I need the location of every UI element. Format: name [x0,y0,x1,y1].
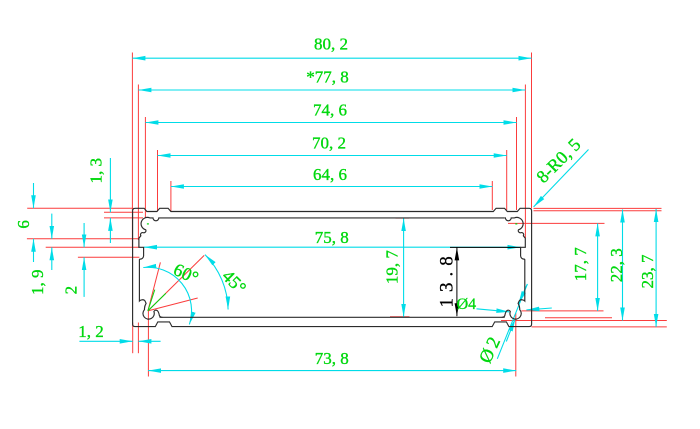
svg-text:8-R0, 5: 8-R0, 5 [532,134,584,186]
svg-text:22, 3: 22, 3 [607,248,626,282]
svg-text:Ø4: Ø4 [457,296,477,313]
svg-text:64, 6: 64, 6 [313,165,347,184]
svg-text:19, 7: 19, 7 [382,250,401,285]
svg-text:75, 8: 75, 8 [315,228,349,247]
svg-text:13.8: 13.8 [437,250,458,307]
svg-text:45°: 45° [218,266,250,298]
svg-text:*77, 8: *77, 8 [306,67,349,86]
svg-text:73, 8: 73, 8 [315,349,349,368]
svg-text:6: 6 [14,220,33,229]
svg-text:74, 6: 74, 6 [313,100,347,119]
svg-text:1, 2: 1, 2 [78,322,104,341]
svg-text:70, 2: 70, 2 [312,133,346,152]
svg-text:1, 9: 1, 9 [28,270,47,296]
svg-text:Ø2: Ø2 [476,331,507,366]
svg-text:80, 2: 80, 2 [314,34,348,53]
svg-text:1, 3: 1, 3 [87,158,106,184]
svg-text:23, 7: 23, 7 [638,254,657,289]
svg-text:2: 2 [62,286,81,295]
svg-text:17, 7: 17, 7 [571,247,590,282]
